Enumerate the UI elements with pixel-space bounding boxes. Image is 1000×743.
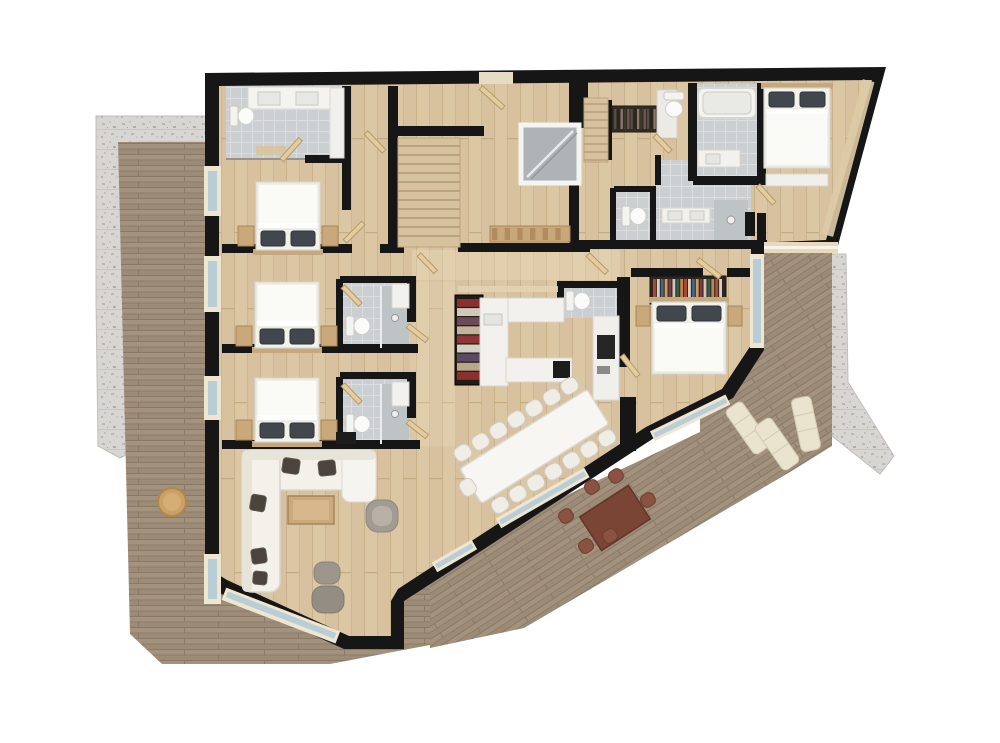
wardrobe-clothes — [650, 109, 652, 129]
bed-2-duvet — [257, 284, 317, 327]
bed-master-fold — [654, 323, 724, 328]
nightstand — [636, 306, 650, 326]
armchair-seat — [372, 506, 392, 526]
wine-bottles — [457, 326, 481, 334]
wall — [340, 372, 416, 379]
wine-bottles — [457, 363, 481, 371]
bed-ne-pillow — [769, 92, 794, 107]
sofa-cushion — [318, 460, 336, 477]
bed-2-fold — [257, 321, 317, 326]
sofa-back-v — [242, 450, 252, 592]
wine-bottles — [457, 372, 481, 380]
hot-tub-inner — [163, 493, 181, 511]
entry-bench-slats — [530, 228, 535, 240]
coffee-table-top — [293, 500, 329, 520]
bed-master-duvet — [654, 323, 724, 372]
wall — [745, 212, 755, 236]
toilet-bath-tl-bowl — [238, 108, 254, 125]
nightstand — [321, 420, 337, 440]
nightstand — [236, 420, 252, 440]
bed-1-pillow — [291, 231, 315, 246]
wardrobe-clothes — [644, 109, 646, 129]
bed-ne-duvet — [766, 109, 828, 166]
wall — [688, 83, 697, 181]
wardrobe-clothes — [647, 109, 649, 129]
wardrobe-clothes — [621, 109, 623, 129]
window-glass — [208, 381, 217, 415]
floorplan — [0, 0, 1000, 743]
bed-1-pillow — [261, 231, 285, 246]
bed-3-pillow — [260, 423, 284, 438]
wine-bottles — [457, 345, 481, 353]
bathtub-inner — [703, 92, 751, 114]
window-glass — [208, 559, 217, 599]
wall — [650, 188, 656, 243]
wine-bottles — [457, 354, 481, 362]
toilet-wc-kitchen-bowl — [574, 293, 590, 310]
wardrobe-clothes — [630, 109, 632, 129]
wine-bottles — [457, 308, 481, 316]
bed-master-pillow — [692, 306, 721, 321]
sofa-cushion — [251, 548, 268, 565]
wardrobe-clothes — [614, 109, 616, 129]
kitchen-appliance — [597, 366, 610, 374]
entry-bench-slats — [524, 228, 529, 240]
nightstand — [238, 226, 254, 246]
wall — [620, 397, 636, 451]
stone-strip-right — [826, 254, 894, 474]
entry-bench-slats — [536, 228, 541, 240]
shower-head — [392, 315, 399, 322]
bed-ne-pillow — [800, 92, 825, 107]
fireplace — [336, 432, 356, 444]
pouf — [314, 562, 340, 584]
oven — [597, 335, 615, 359]
sink — [690, 211, 704, 220]
entry-bench-slats — [549, 228, 554, 240]
wardrobe-clothes — [634, 109, 636, 129]
cooktop — [553, 361, 570, 378]
sink — [296, 92, 318, 105]
wardrobe-clothes — [627, 109, 629, 129]
toilet-wc-hall-bowl — [630, 208, 646, 225]
bed-3-pillow — [290, 423, 314, 438]
toilet-wc-hall-tank — [622, 206, 630, 226]
nightstand — [321, 326, 337, 346]
entry-bench-slats — [498, 228, 503, 240]
toilet-bath-tl-tank — [230, 106, 238, 126]
wardrobe-clothes — [617, 109, 619, 129]
bed-1-fold — [258, 223, 318, 228]
bed-ne-fold — [766, 109, 828, 114]
wall — [575, 240, 767, 249]
hall-floor — [410, 282, 456, 446]
wall — [614, 186, 656, 192]
sofa-cushion — [252, 571, 267, 585]
toilet-bath-2-bowl — [354, 318, 370, 335]
wall — [458, 243, 590, 252]
bed-master-pillow — [657, 306, 686, 321]
shower-head — [727, 216, 735, 224]
bath-mat — [256, 146, 286, 155]
wine-bottles — [457, 317, 481, 325]
wardrobe-clothes — [637, 109, 639, 129]
kitchen-counter-left — [480, 298, 508, 386]
toilet-bath-2-tank — [346, 316, 354, 336]
toilet-wc-top-tank — [664, 92, 684, 100]
wall — [757, 213, 766, 243]
sofa-cushion — [249, 494, 267, 512]
pouf — [312, 586, 344, 613]
entry-bench-slats — [517, 228, 522, 240]
wall — [340, 276, 416, 283]
entry-bench-slats — [505, 228, 510, 240]
bed-foot-bench — [766, 174, 828, 186]
window-glass — [208, 261, 217, 307]
entry-bench-slats — [562, 228, 567, 240]
bed-3-duvet — [257, 380, 317, 421]
nightstand — [728, 306, 742, 326]
toilet-bath-3-tank — [346, 414, 354, 434]
window-glass — [753, 259, 761, 343]
floorplan-svg — [0, 0, 1000, 743]
wall — [388, 86, 398, 247]
sofa-back-h — [242, 450, 376, 460]
vanity — [392, 284, 409, 308]
window-glass — [208, 171, 217, 211]
wine-bottles — [457, 299, 481, 307]
bath-cabinet — [330, 88, 344, 158]
bed-2-pillow — [260, 329, 284, 344]
wall — [693, 176, 767, 185]
wall — [557, 281, 624, 288]
nightstand — [322, 226, 338, 246]
wall — [610, 188, 616, 243]
wall — [655, 155, 661, 185]
sofa-cushion — [282, 457, 301, 474]
wardrobe-clothes — [640, 109, 642, 129]
toilet-bath-3-bowl — [354, 416, 370, 433]
toilet-wc-top-bowl — [666, 101, 683, 117]
bed-3-fold — [257, 415, 317, 420]
kitchen-beam — [458, 286, 558, 292]
shower-head — [392, 411, 399, 418]
wardrobe-clothes — [624, 109, 626, 129]
kitchen-sink — [484, 314, 502, 325]
entry-bench-slats — [511, 228, 516, 240]
wall — [398, 126, 484, 136]
sink — [258, 92, 280, 105]
vanity — [392, 382, 409, 406]
sink — [668, 211, 682, 220]
entry-bench-slats — [492, 228, 497, 240]
entry-bench-slats — [543, 228, 548, 240]
nightstand — [236, 326, 252, 346]
bed-1-duvet — [258, 184, 318, 229]
entry-threshold — [479, 72, 513, 84]
bed-2-pillow — [290, 329, 314, 344]
toilet-wc-kitchen-tank — [566, 291, 574, 311]
sink — [706, 154, 720, 164]
wardrobe-clothes — [653, 109, 655, 129]
deck-sill-line — [764, 246, 838, 249]
wine-bottles — [457, 335, 481, 343]
entry-bench-slats — [555, 228, 560, 240]
